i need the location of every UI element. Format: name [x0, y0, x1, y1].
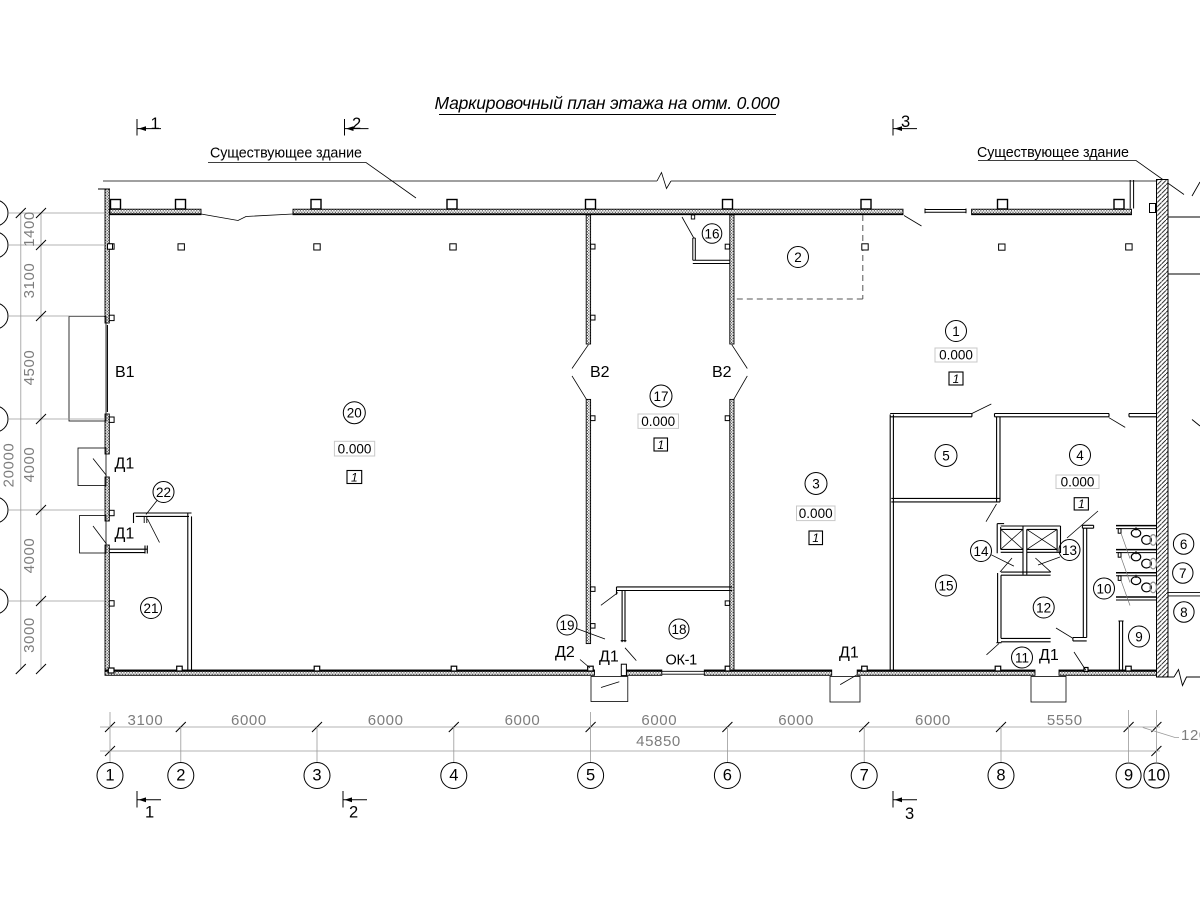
svg-text:Д1: Д1 — [599, 649, 619, 666]
svg-text:5: 5 — [942, 448, 950, 463]
svg-text:6: 6 — [1180, 537, 1188, 552]
svg-text:2: 2 — [794, 250, 802, 265]
svg-text:16: 16 — [704, 226, 719, 241]
svg-text:20000: 20000 — [1, 443, 18, 488]
svg-text:6000: 6000 — [641, 712, 677, 729]
svg-text:4: 4 — [1076, 448, 1084, 463]
svg-text:1: 1 — [953, 372, 960, 386]
svg-text:1400: 1400 — [21, 211, 38, 247]
svg-text:Существующее здание: Существующее здание — [977, 145, 1129, 161]
svg-text:2: 2 — [176, 767, 185, 785]
svg-text:19: 19 — [559, 618, 574, 633]
svg-text:В2: В2 — [590, 364, 610, 381]
svg-text:4000: 4000 — [21, 538, 38, 574]
svg-text:Д1: Д1 — [115, 526, 135, 543]
svg-text:0.000: 0.000 — [1061, 474, 1095, 489]
svg-text:4500: 4500 — [21, 350, 38, 386]
svg-text:ОК-1: ОК-1 — [666, 653, 698, 669]
svg-text:5550: 5550 — [1047, 712, 1083, 729]
svg-text:12: 12 — [1036, 600, 1051, 615]
svg-text:45850: 45850 — [636, 733, 681, 750]
svg-text:1: 1 — [151, 115, 160, 133]
svg-text:6000: 6000 — [231, 712, 267, 729]
svg-text:8: 8 — [1180, 605, 1188, 620]
svg-text:4: 4 — [449, 767, 458, 785]
svg-text:3000: 3000 — [21, 617, 38, 653]
svg-text:15: 15 — [938, 578, 953, 593]
svg-text:1: 1 — [812, 531, 819, 545]
svg-text:9: 9 — [1124, 767, 1133, 785]
svg-text:18: 18 — [671, 622, 686, 637]
svg-text:2: 2 — [352, 115, 361, 133]
svg-text:1: 1 — [952, 324, 960, 339]
svg-text:0.000: 0.000 — [939, 348, 973, 363]
svg-text:14: 14 — [973, 544, 989, 559]
svg-text:6: 6 — [723, 767, 732, 785]
svg-text:7: 7 — [1179, 566, 1187, 581]
svg-text:17: 17 — [653, 389, 668, 404]
svg-text:3100: 3100 — [21, 263, 38, 299]
svg-text:3: 3 — [905, 805, 914, 823]
svg-text:Существующее здание: Существующее здание — [210, 146, 362, 162]
svg-text:Д1: Д1 — [839, 645, 859, 662]
svg-text:11: 11 — [1015, 650, 1029, 665]
svg-text:0.000: 0.000 — [338, 441, 372, 456]
svg-text:10: 10 — [1147, 767, 1165, 785]
svg-text:13: 13 — [1062, 543, 1077, 558]
svg-text:3: 3 — [812, 476, 820, 491]
svg-text:4000: 4000 — [21, 447, 38, 483]
svg-text:3: 3 — [312, 767, 321, 785]
svg-text:20: 20 — [347, 406, 362, 421]
svg-text:Д2: Д2 — [555, 644, 575, 661]
svg-text:1: 1 — [105, 767, 114, 785]
svg-text:6000: 6000 — [505, 712, 541, 729]
svg-text:7: 7 — [860, 767, 869, 785]
svg-text:22: 22 — [156, 485, 171, 500]
svg-text:5: 5 — [586, 767, 595, 785]
svg-text:Д1: Д1 — [115, 456, 135, 473]
svg-text:0.000: 0.000 — [641, 414, 675, 429]
svg-text:6000: 6000 — [915, 712, 951, 729]
svg-text:В1: В1 — [115, 364, 135, 381]
svg-text:0.000: 0.000 — [799, 506, 833, 521]
svg-text:6000: 6000 — [778, 712, 814, 729]
svg-text:2: 2 — [349, 804, 358, 822]
svg-text:В2: В2 — [712, 364, 732, 381]
svg-text:1: 1 — [351, 471, 358, 485]
svg-text:8: 8 — [996, 767, 1005, 785]
svg-text:6000: 6000 — [368, 712, 404, 729]
svg-text:Д1: Д1 — [1039, 647, 1059, 664]
svg-text:3100: 3100 — [128, 712, 164, 729]
svg-text:10: 10 — [1096, 581, 1111, 596]
svg-text:3: 3 — [901, 113, 910, 131]
svg-text:1: 1 — [1078, 497, 1085, 511]
svg-text:1: 1 — [657, 438, 664, 452]
svg-text:1200: 1200 — [1181, 727, 1200, 744]
svg-text:Маркировочный план этажа на от: Маркировочный план этажа на отм. 0.000 — [435, 93, 780, 113]
svg-text:1: 1 — [145, 804, 154, 822]
svg-text:21: 21 — [143, 601, 158, 616]
svg-text:9: 9 — [1135, 629, 1143, 644]
